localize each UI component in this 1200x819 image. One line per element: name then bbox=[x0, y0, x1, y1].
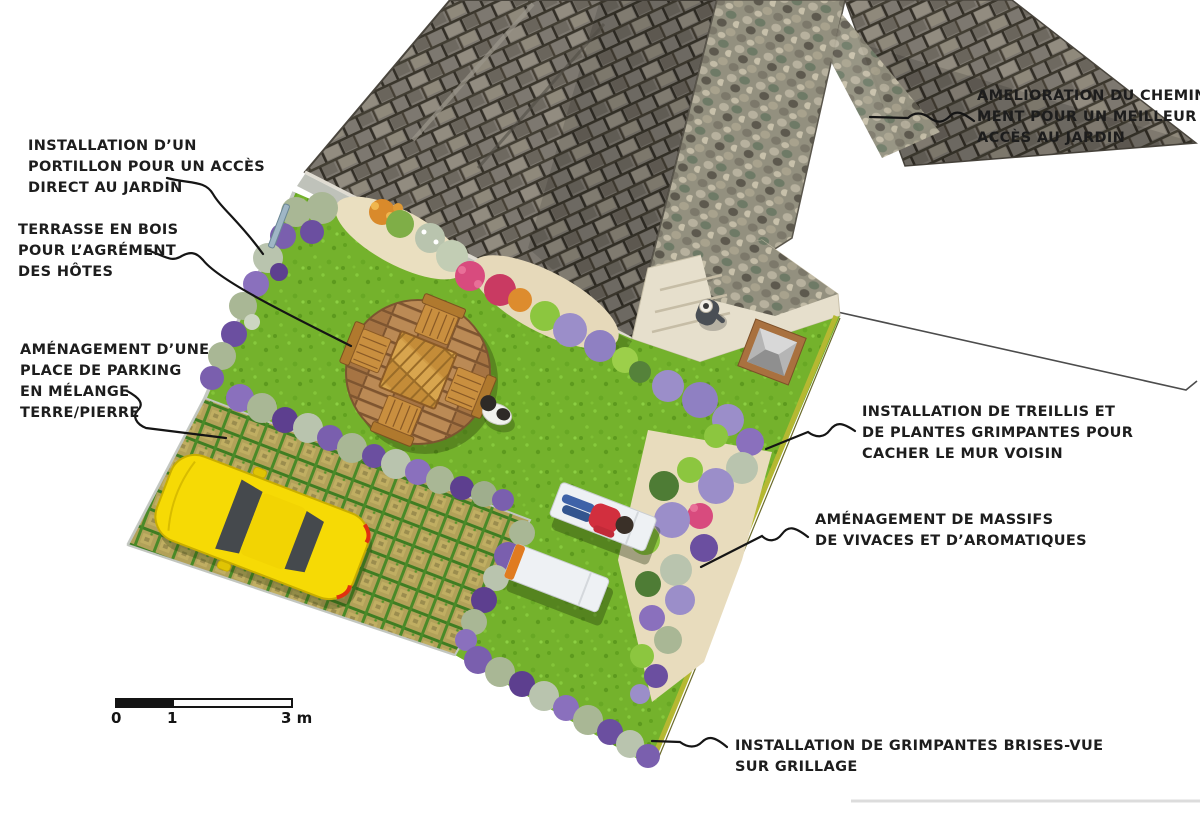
annotation-line: INSTALLATION DE GRIMPANTES BRISES-VUE bbox=[735, 736, 1103, 757]
scale-bar-solid-segment bbox=[117, 700, 174, 706]
annotation-line: AMELIORATION DU CHEMINE- bbox=[977, 86, 1200, 107]
annotation-line: INSTALLATION DE TREILLIS ET bbox=[862, 402, 1133, 423]
annotation-line: DIRECT AU JARDIN bbox=[28, 178, 265, 199]
scale-bar: 0 1 3 m bbox=[115, 698, 305, 740]
scale-label-0: 0 bbox=[111, 709, 121, 727]
annotation-line: DE PLANTES GRIMPANTES POUR bbox=[862, 423, 1133, 444]
annotation-portillon: INSTALLATION D’UN PORTILLON POUR UN ACCÈ… bbox=[28, 136, 265, 199]
annotation-line: EN MÉLANGE bbox=[20, 382, 209, 403]
annotation-massifs: AMÉNAGEMENT DE MASSIFS DE VIVACES ET D’A… bbox=[815, 510, 1087, 552]
annotation-terrasse: TERRASSE EN BOIS POUR L’AGRÉMENT DES HÔT… bbox=[18, 220, 178, 283]
garden-plan-page: INSTALLATION D’UN PORTILLON POUR UN ACCÈ… bbox=[0, 0, 1200, 819]
scale-label-1: 1 bbox=[167, 709, 177, 727]
annotation-line: PORTILLON POUR UN ACCÈS bbox=[28, 157, 265, 178]
annotation-line: DES HÔTES bbox=[18, 262, 178, 283]
annotation-line: POUR L’AGRÉMENT bbox=[18, 241, 178, 262]
scale-label-3m: 3 m bbox=[281, 709, 312, 727]
property-boundary-lines bbox=[833, 311, 1200, 801]
annotation-line: PLACE DE PARKING bbox=[20, 361, 209, 382]
annotation-parking: AMÉNAGEMENT D’UNE PLACE DE PARKING EN MÉ… bbox=[20, 340, 209, 424]
annotation-line: AMÉNAGEMENT D’UNE bbox=[20, 340, 209, 361]
annotation-line: DE VIVACES ET D’AROMATIQUES bbox=[815, 531, 1087, 552]
annotation-line: INSTALLATION D’UN bbox=[28, 136, 265, 157]
annotation-cheminement: AMELIORATION DU CHEMINE- MENT POUR UN ME… bbox=[977, 86, 1200, 149]
annotation-treillis: INSTALLATION DE TREILLIS ET DE PLANTES G… bbox=[862, 402, 1133, 465]
annotation-line: CACHER LE MUR VOISIN bbox=[862, 444, 1133, 465]
annotation-line: AMÉNAGEMENT DE MASSIFS bbox=[815, 510, 1087, 531]
scale-bar-track bbox=[115, 698, 293, 708]
annotation-grimpantes: INSTALLATION DE GRIMPANTES BRISES-VUE SU… bbox=[735, 736, 1103, 778]
annotation-line: MENT POUR UN MEILLEUR bbox=[977, 107, 1200, 128]
annotation-line: TERRE/PIERRE bbox=[20, 403, 209, 424]
annotation-line: SUR GRILLAGE bbox=[735, 757, 1103, 778]
annotation-line: ACCÈS AU JARDIN bbox=[977, 128, 1200, 149]
annotation-line: TERRASSE EN BOIS bbox=[18, 220, 178, 241]
